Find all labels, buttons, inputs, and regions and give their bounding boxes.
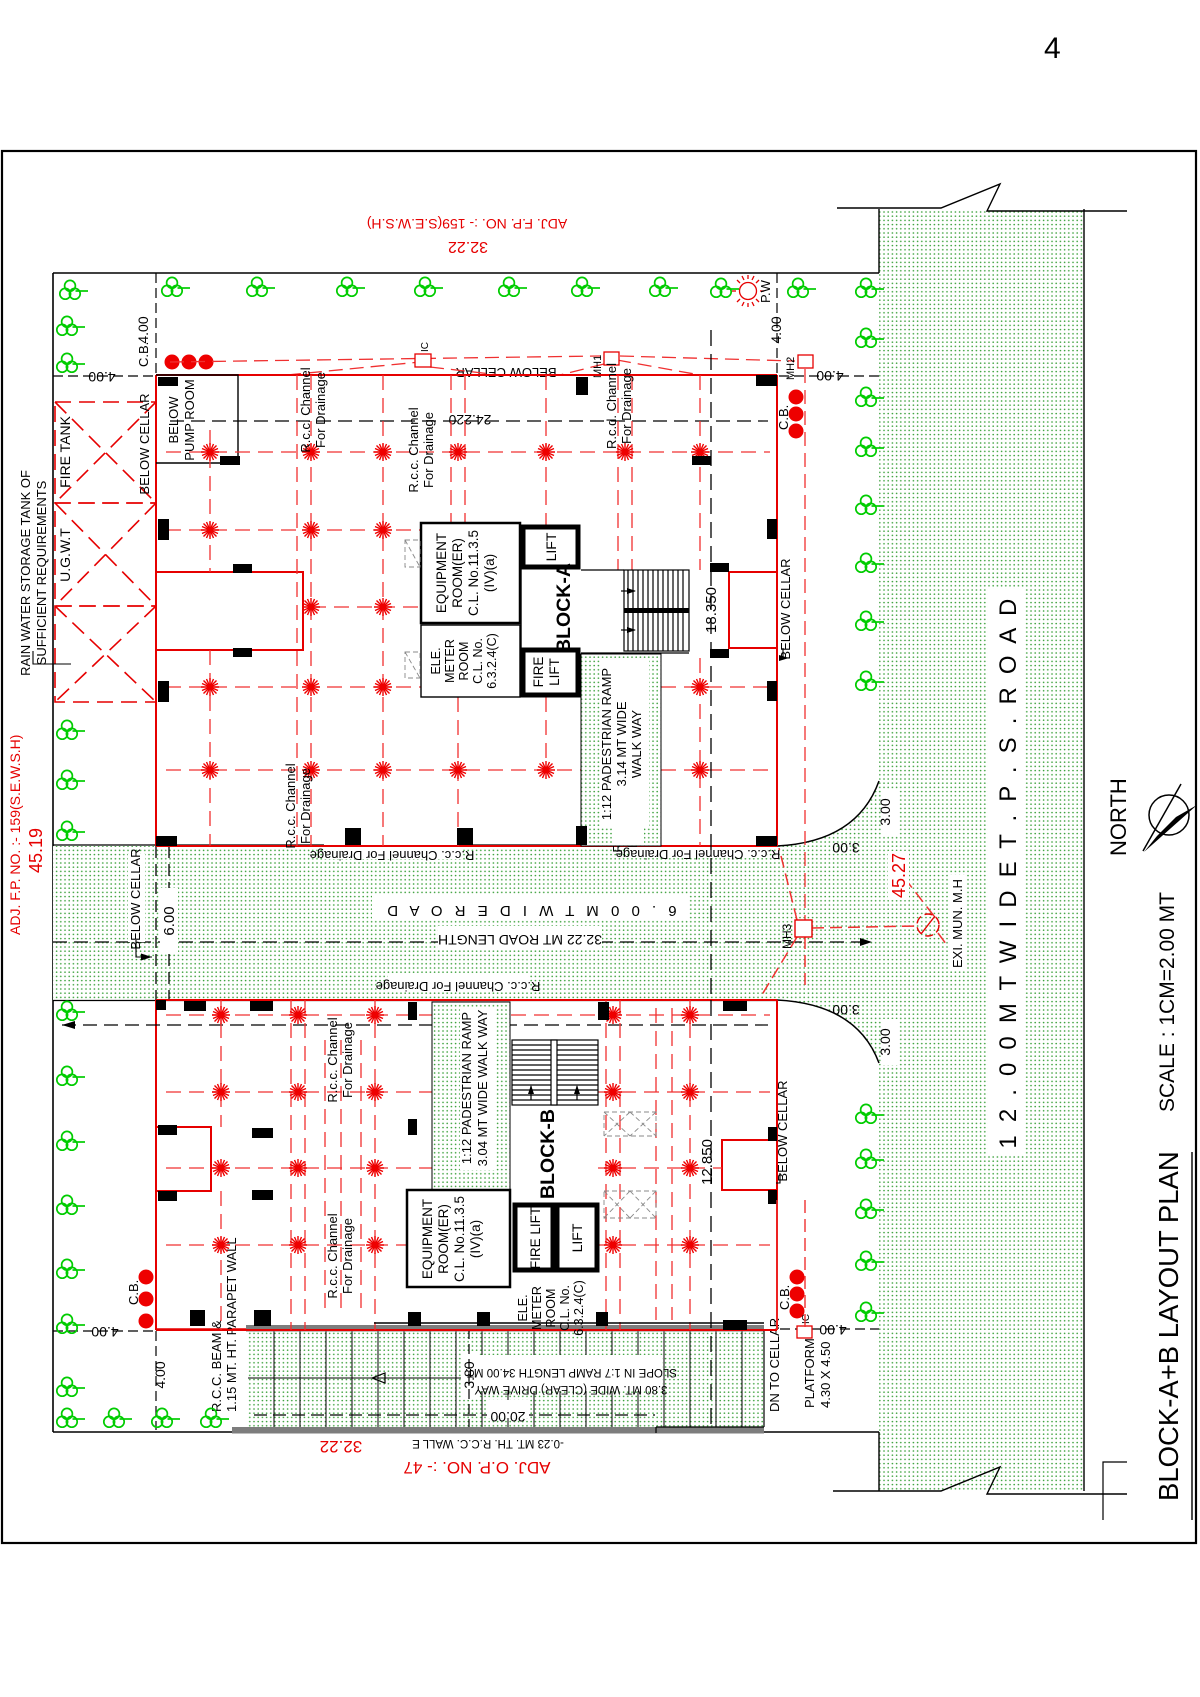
svg-text:ROOM(ER): ROOM(ER) [450,538,465,608]
svg-text:3.04 MT WIDE WALK WAY: 3.04 MT WIDE WALK WAY [475,1009,490,1166]
svg-text:3.00: 3.00 [832,840,859,856]
svg-text:SUFFICIENT REQUIREMENTS: SUFFICIENT REQUIREMENTS [34,480,49,665]
svg-text:1:12 PADESTRIAN RAMP: 1:12 PADESTRIAN RAMP [599,668,614,820]
svg-text:For Drainage: For Drainage [421,412,436,488]
svg-text:-0.23 MT. TH. R.C.C. WALL E: -0.23 MT. TH. R.C.C. WALL E [412,1437,564,1449]
svg-text:LIFT: LIFT [543,532,559,561]
svg-text:(IV)(a): (IV)(a) [482,554,497,592]
svg-text:4.00: 4.00 [135,316,151,343]
svg-text:SLOPE IN 1:7 RAMP LENGTH 34.00: SLOPE IN 1:7 RAMP LENGTH 34.00 MT. [465,1366,677,1378]
svg-text:45.19: 45.19 [26,828,46,873]
svg-text:3.00: 3.00 [877,798,893,825]
svg-text:WALK WAY: WALK WAY [629,710,644,778]
svg-text:C.L. No.: C.L. No. [471,638,485,684]
svg-text:BELOW: BELOW [166,396,181,444]
svg-text:LIFT: LIFT [569,1223,585,1252]
svg-text:BLOCK-B: BLOCK-B [537,1109,559,1199]
svg-text:MH3: MH3 [780,923,794,949]
svg-text:SCALE : 1CM=2.00 MT: SCALE : 1CM=2.00 MT [1156,892,1179,1112]
svg-text:ADJ. F.P. NO. :- 159(S.E.W.S.H: ADJ. F.P. NO. :- 159(S.E.W.S.H) [367,216,567,232]
svg-text:BLOCK-A+B LAYOUT PLAN: BLOCK-A+B LAYOUT PLAN [1153,1151,1184,1501]
svg-text:ROOM: ROOM [457,642,471,681]
svg-text:DN TO CELLAR: DN TO CELLAR [767,1318,782,1412]
svg-text:FIRE: FIRE [531,657,546,688]
svg-text:IC: IC [801,1314,812,1324]
svg-text:C.L. No.: C.L. No. [558,1285,572,1331]
svg-text:BELOW CELLAR: BELOW CELLAR [137,393,152,494]
svg-text:4.00: 4.00 [816,368,843,384]
svg-text:4.00: 4.00 [152,1361,168,1388]
svg-text:BELOW CELLAR: BELOW CELLAR [775,1080,790,1181]
svg-text:4: 4 [1044,32,1061,65]
svg-text:3.00: 3.00 [877,1028,893,1055]
svg-text:4.00: 4.00 [88,369,115,385]
svg-text:3.14 MT WIDE: 3.14 MT WIDE [614,701,629,786]
svg-text:20.00: 20.00 [490,1409,525,1425]
svg-text:6.00: 6.00 [161,906,178,935]
svg-text:P.W: P.W [758,279,773,303]
svg-text:1.15 MT. HT. PARAPET WALL: 1.15 MT. HT. PARAPET WALL [224,1237,239,1412]
svg-text:3.80 MT. WIDE (CLEAR) DRIVE WA: 3.80 MT. WIDE (CLEAR) DRIVE WAY [474,1383,667,1395]
svg-text:(IV)(a): (IV)(a) [468,1220,483,1258]
svg-text:45.27: 45.27 [889,853,909,898]
svg-text:1:12 PADESTRIAN RAMP: 1:12 PADESTRIAN RAMP [459,1012,474,1164]
svg-text:C.B.: C.B. [126,1280,141,1305]
svg-text:4.30 X 4.50: 4.30 X 4.50 [818,1342,833,1409]
svg-text:NORTH: NORTH [1106,778,1131,856]
svg-text:ADJ. O.P. NO. :- 47: ADJ. O.P. NO. :- 47 [403,1458,550,1477]
svg-text:4.00: 4.00 [768,316,784,343]
svg-text:ROOM: ROOM [544,1289,558,1328]
svg-text:R.C.C. BEAM &: R.C.C. BEAM & [209,1320,224,1412]
svg-text:FIRE LIFT: FIRE LIFT [528,1207,543,1269]
svg-text:BELOW CELLAR: BELOW CELLAR [455,365,556,380]
svg-text:24.220: 24.220 [448,412,491,428]
svg-text:PUMP ROOM: PUMP ROOM [182,379,197,460]
svg-text:32.22 MT ROAD LENGTH: 32.22 MT ROAD LENGTH [438,932,602,948]
svg-text:EQUIPMENT: EQUIPMENT [434,533,449,613]
svg-text:6 . 0 0 M T W I D E R O A D: 6 . 0 0 M T W I D E R O A D [383,902,676,919]
svg-text:PLATFORM: PLATFORM [802,1338,817,1408]
svg-text:32.22: 32.22 [320,1437,363,1456]
svg-text:R.c.c. Channel: R.c.c. Channel [325,1213,340,1298]
svg-text:BELOW CELLAR: BELOW CELLAR [128,848,143,949]
svg-text:R.c.c. Channel: R.c.c. Channel [406,407,421,492]
svg-text:R.c.c. Channel: R.c.c. Channel [325,1017,340,1102]
svg-text:R.c.c. Channel: R.c.c. Channel [283,763,298,848]
svg-text:4.00: 4.00 [819,1322,846,1338]
svg-text:R.c.c. Channel: R.c.c. Channel [298,367,313,452]
svg-text:6.3.2.4(C): 6.3.2.4(C) [485,633,499,689]
svg-text:EXI. MUN. M.H: EXI. MUN. M.H [950,879,965,968]
svg-text:U.G.W.T: U.G.W.T [57,528,73,582]
svg-text:ELE.: ELE. [429,647,443,674]
svg-text:R.c.c. Channel For Drainage: R.c.c. Channel For Drainage [310,848,475,863]
svg-text:R.c.d. Channel: R.c.d. Channel [604,363,619,449]
svg-text:C.L. No.11.3.5: C.L. No.11.3.5 [452,1196,467,1282]
svg-text:METER: METER [443,639,457,683]
svg-text:ROOM(ER): ROOM(ER) [436,1204,451,1274]
svg-text:RAIN WATER STORAGE TANK OF: RAIN WATER STORAGE TANK OF [18,470,33,676]
svg-text:LIFT: LIFT [547,658,562,686]
svg-text:For Drainage: For Drainage [313,372,328,448]
svg-text:ADJ. F.P. NO. :- 159(S.E.W.S.H: ADJ. F.P. NO. :- 159(S.E.W.S.H) [7,735,23,935]
svg-text:BELOW CELLAR: BELOW CELLAR [778,558,793,659]
svg-text:For Drainage: For Drainage [340,1022,355,1098]
svg-text:FIRE TANK: FIRE TANK [57,415,73,487]
svg-text:ELE.: ELE. [516,1294,530,1321]
svg-text:C.B.: C.B. [136,342,151,367]
svg-text:6.3.2.4(C): 6.3.2.4(C) [572,1280,586,1336]
svg-text:1 2 . 0 0 M T W I D E T .: 1 2 . 0 0 M T W I D E T . P . S . R O A … [995,595,1022,1148]
svg-text:C.B.: C.B. [777,1285,792,1310]
svg-text:For Drainage: For Drainage [298,768,313,844]
svg-text:32.22: 32.22 [448,238,488,255]
svg-text:R.c.c. Channel For Drainage: R.c.c. Channel For Drainage [616,847,781,862]
svg-text:3.80: 3.80 [461,1361,477,1388]
svg-text:C.B.: C.B. [776,405,791,430]
svg-text:EQUIPMENT: EQUIPMENT [420,1199,435,1279]
svg-text:3.00: 3.00 [832,1002,859,1018]
svg-text:For Drainage: For Drainage [619,368,634,444]
svg-text:IC: IC [420,342,431,352]
svg-text:BLOCK-A: BLOCK-A [553,563,575,653]
svg-text:12.850: 12.850 [699,1139,716,1185]
svg-text:R.c.c. Channel For Drainage: R.c.c. Channel For Drainage [376,979,541,994]
svg-text:For Drainage: For Drainage [340,1218,355,1294]
svg-text:4.00: 4.00 [91,1324,118,1340]
svg-text:C.L. No.11.3.5: C.L. No.11.3.5 [466,530,481,616]
